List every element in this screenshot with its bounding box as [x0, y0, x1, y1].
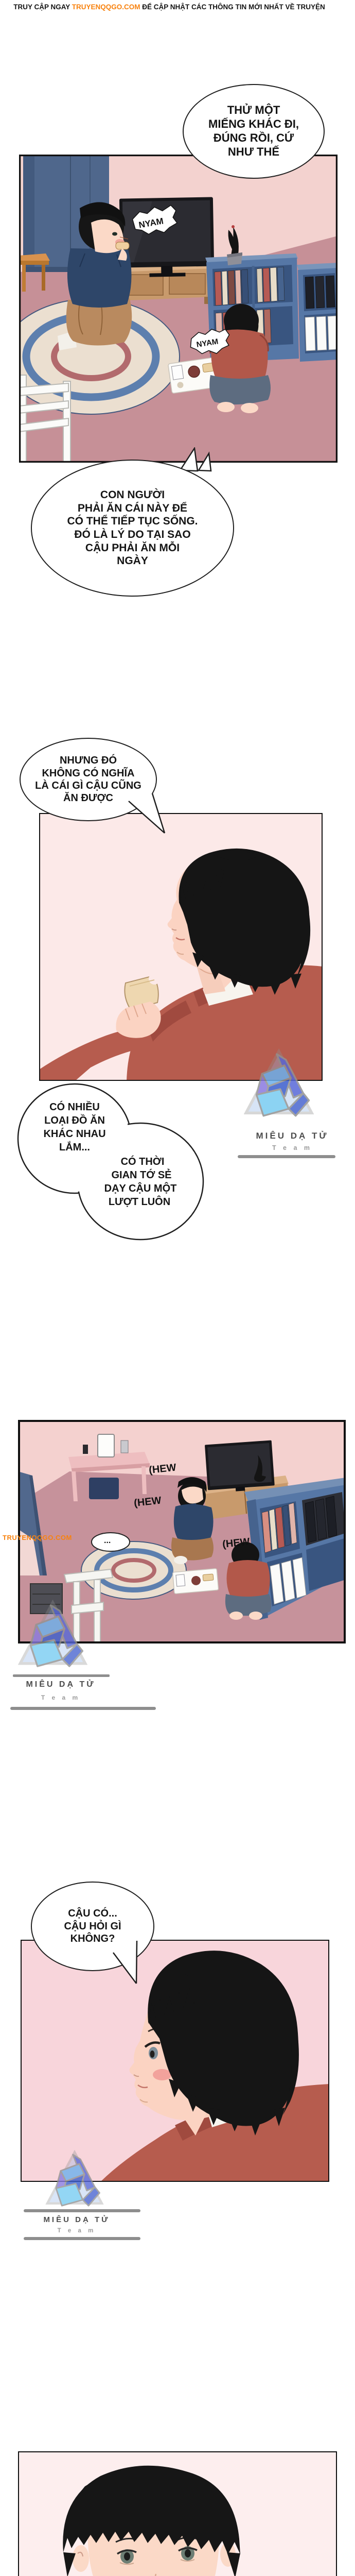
svg-text:...: ... [104, 1536, 111, 1545]
svg-text:GIAN TỚ SẺ: GIAN TỚ SẺ [111, 1168, 171, 1181]
svg-text:LOẠI ĐỒ ĂN: LOẠI ĐỒ ĂN [44, 1114, 105, 1126]
svg-text:CÓ NHIỀU: CÓ NHIỀU [49, 1100, 100, 1113]
svg-text:CÓ THỜI: CÓ THỜI [121, 1155, 165, 1167]
svg-text:KHÁC NHAU: KHÁC NHAU [43, 1128, 105, 1140]
svg-text:LƯỢT LUÔN: LƯỢT LUÔN [109, 1195, 170, 1208]
svg-text:DẠY CẬU MỘT: DẠY CẬU MỘT [104, 1182, 177, 1194]
svg-text:LẮM...: LẮM... [59, 1141, 90, 1153]
